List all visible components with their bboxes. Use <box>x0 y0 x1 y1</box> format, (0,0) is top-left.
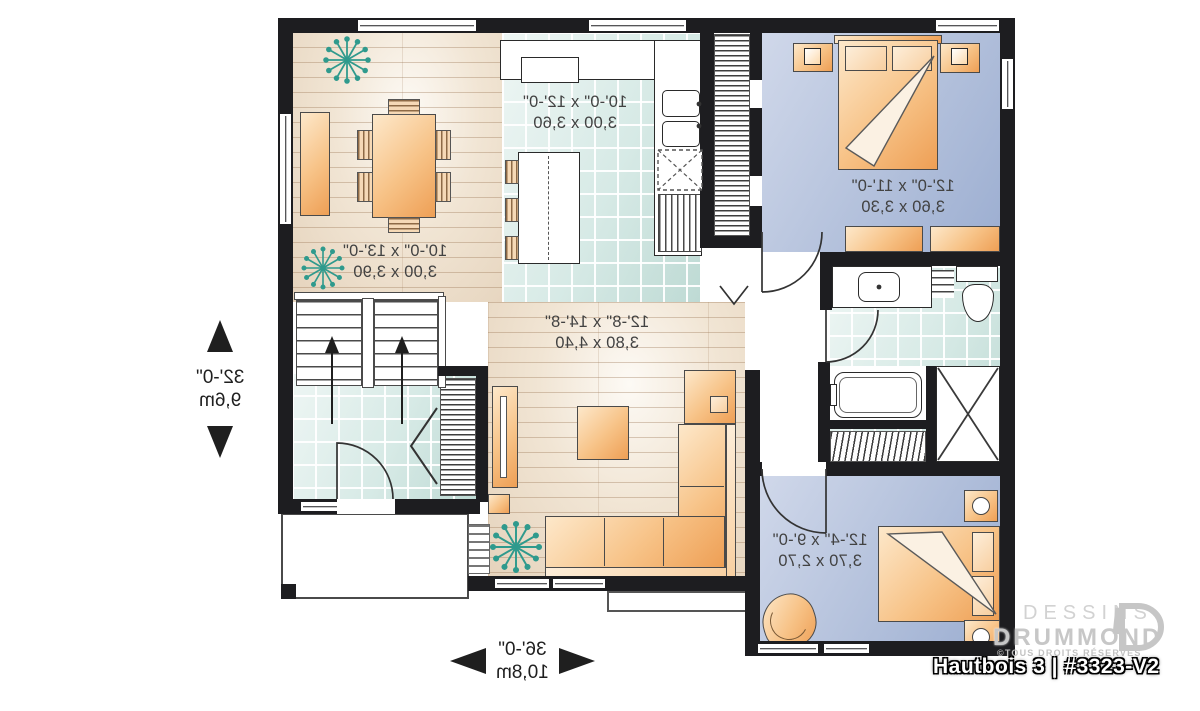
kitchen-dim-metric: 3,00 x 3,60 <box>490 113 660 134</box>
wall <box>750 108 762 176</box>
sofa-main <box>545 516 725 568</box>
pillow <box>892 46 932 71</box>
depth-metric: 9,6m <box>196 389 244 412</box>
master-bedroom-label: 12'-0" x 11'-0" 3,60 x 3,30 <box>818 176 988 218</box>
cooktop <box>521 57 579 83</box>
dining-chair <box>357 130 373 160</box>
front-door-opening <box>337 499 395 514</box>
wall <box>826 420 932 429</box>
living-dim-imperial: 12'-8" x 14'-8" <box>512 312 682 333</box>
wall <box>476 372 488 502</box>
width-metric: 10,8m <box>496 661 549 684</box>
kitchen-label: 10'-0" x 12'-0" 3,00 x 3,60 <box>490 92 660 134</box>
dining-label: 10'-0" x 13'-0" 3,00 x 3,90 <box>310 241 480 283</box>
bedroom2-dim-metric: 3,70 x 2,70 <box>735 551 905 572</box>
wall <box>278 18 293 514</box>
bedroom2-dim-imperial: 12'-4" x 9'-0" <box>735 530 905 551</box>
vanity-sink <box>858 272 900 302</box>
stair-divider <box>362 298 374 388</box>
window <box>300 501 340 512</box>
living-dim-metric: 3,80 x 4,40 <box>512 333 682 354</box>
width-imperial: 36'-0" <box>496 638 549 661</box>
master-closet <box>714 34 750 236</box>
kitchen-sink-basin-1 <box>662 90 700 117</box>
kitchen-dim-imperial: 10'-0" x 12'-0" <box>490 92 660 113</box>
dining-chair <box>388 99 420 115</box>
pillow <box>972 532 994 572</box>
side-table <box>488 494 510 514</box>
arrow-right-icon <box>559 648 595 674</box>
porch-post <box>281 584 296 599</box>
nightstand-lamp <box>972 497 990 515</box>
toilet-tank <box>956 266 998 282</box>
stair-flight-left <box>296 300 362 386</box>
wall <box>750 32 762 80</box>
width-dimension: 36'-0" 10,8m <box>450 638 595 684</box>
window <box>757 643 819 654</box>
buffet <box>300 112 330 216</box>
arrow-down-icon <box>207 426 233 458</box>
wall <box>1000 18 1015 656</box>
dining-chair <box>357 172 373 202</box>
wall <box>826 462 1015 476</box>
front-porch <box>281 513 469 599</box>
nightstand-lamp <box>951 48 968 65</box>
depth-dimension: 32'-0" 9,6m <box>182 320 258 458</box>
arrow-up-icon <box>207 320 233 352</box>
drummond-logo-icon <box>1112 598 1164 654</box>
window <box>823 643 870 654</box>
bedroom2-door-opening <box>762 462 826 476</box>
wall <box>926 366 936 464</box>
wall <box>700 32 714 238</box>
wall <box>745 370 760 656</box>
sofa-cushion-line <box>680 486 724 487</box>
refrigerator <box>658 194 702 252</box>
wall <box>438 366 488 376</box>
dining-dim-metric: 3,00 x 3,90 <box>310 262 480 283</box>
wall <box>750 206 762 238</box>
sofa-cushion-line <box>663 518 664 566</box>
island-stool <box>505 198 519 222</box>
pillow <box>972 576 994 616</box>
window <box>357 19 477 32</box>
window <box>935 19 1000 32</box>
dining-chair <box>435 172 451 202</box>
dining-dim-imperial: 10'-0" x 13'-0" <box>310 241 480 262</box>
wall <box>828 252 1015 266</box>
sofa-cushion-line <box>604 518 605 566</box>
window <box>552 578 606 589</box>
kitchen-sink-basin-2 <box>662 121 700 147</box>
master-dim-imperial: 12'-0" x 11'-0" <box>818 176 988 197</box>
stair-flight-right <box>374 300 438 386</box>
window <box>1001 58 1014 110</box>
bathroom-shelves <box>932 270 954 298</box>
armchair-cushion <box>710 396 728 413</box>
window <box>588 19 687 32</box>
kitchen-island <box>518 152 580 264</box>
shower <box>936 366 1000 462</box>
master-dim-metric: 3,60 x 3,30 <box>818 197 988 218</box>
arrow-left-icon <box>450 648 486 674</box>
porch-steps <box>468 524 490 574</box>
wall <box>818 362 830 428</box>
pillow <box>845 46 887 71</box>
window <box>494 578 550 589</box>
tv-unit-slot <box>500 396 507 478</box>
bedroom2-label: 12'-4" x 9'-0" 3,70 x 2,70 <box>735 530 905 572</box>
bathtub-inner <box>839 377 917 413</box>
dresser <box>845 226 923 252</box>
wall <box>745 462 762 476</box>
island-stool <box>505 236 519 260</box>
depth-imperial: 32'-0" <box>196 366 244 389</box>
wall <box>700 236 762 248</box>
window <box>279 113 292 225</box>
island-divider <box>548 156 549 260</box>
living-label: 12'-8" x 14'-8" 3,80 x 4,40 <box>512 312 682 354</box>
wall <box>820 252 832 310</box>
entry-closet <box>440 378 476 496</box>
floor-plan-canvas: 10'-0" x 12'-0" 3,00 x 3,60 10'-0" x 13'… <box>0 0 1200 711</box>
bedroom2-closet <box>830 431 926 462</box>
rear-step <box>607 591 757 612</box>
dining-chair <box>388 217 420 233</box>
dresser <box>930 226 1000 252</box>
dining-table <box>372 114 436 218</box>
island-stool <box>505 160 519 184</box>
nightstand-lamp <box>804 48 821 65</box>
plan-title: Hautbois 3 | #3323-V2 <box>933 655 1159 679</box>
dining-chair <box>435 130 451 160</box>
coffee-table <box>577 406 629 460</box>
bathtub-faucet <box>830 384 837 406</box>
